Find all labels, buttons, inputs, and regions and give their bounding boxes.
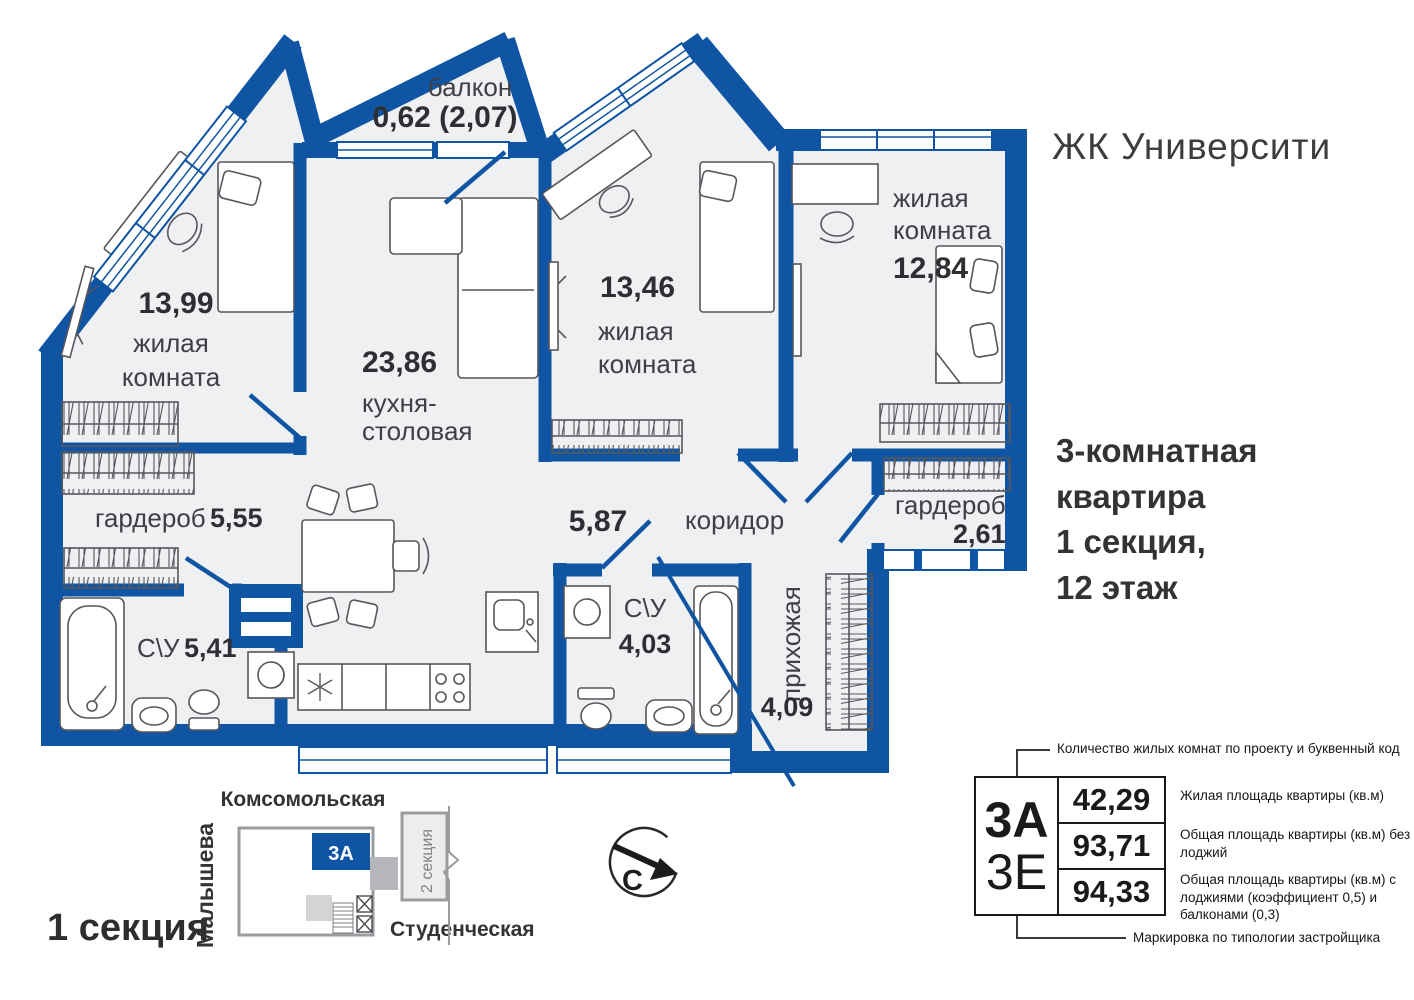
balcony-label: балкон <box>428 72 512 102</box>
neighbor-section-label: 2 секция <box>419 829 436 893</box>
legend-connector <box>1016 916 1018 939</box>
dining-table <box>302 520 394 592</box>
legend-row-label: Жилая площадь квартиры (кв.м) <box>1180 787 1412 805</box>
wardrobe2-label: гардероб <box>895 490 1006 520</box>
balcony-window-door <box>337 142 509 158</box>
legend-row-label: Общая площадь квартиры (кв.м) с лоджиями… <box>1180 871 1412 924</box>
apartment-summary-line: квартира <box>1056 474 1258 520</box>
bathtub <box>60 598 124 730</box>
living1-label: жилая <box>133 328 209 358</box>
vent-shaft <box>229 584 303 648</box>
balcony-area: 0,62 (2,07) <box>372 101 517 134</box>
kitchen-area: 23,86 <box>362 346 437 379</box>
area-total-value: 93,71 <box>1059 822 1164 868</box>
legend-connector <box>1016 749 1050 751</box>
legend-connector <box>1016 937 1126 939</box>
shelf-rack <box>884 458 1010 491</box>
apartment-summary-line: 12 этаж <box>1056 565 1258 611</box>
floor-plan-svg: балкон 0,62 (2,07) 13,99 жилая комната 2… <box>0 0 1040 792</box>
street-bottom: Студенческая <box>390 918 535 941</box>
site-plan-svg: 1 секция Малышева Комсомольская Студенче… <box>35 780 705 985</box>
legend-values: 42,29 93,71 94,33 <box>1059 778 1164 914</box>
living3-label: жилая <box>893 183 969 213</box>
shelf-rack <box>552 420 682 453</box>
apartment-summary-line: 1 секция, <box>1056 519 1258 565</box>
area-living-value: 42,29 <box>1059 778 1164 822</box>
window-sill <box>299 747 731 773</box>
tv-icon <box>793 264 801 356</box>
washbasin <box>646 700 692 732</box>
corridor-area: 5,87 <box>569 505 627 538</box>
living1-area: 13,99 <box>138 287 213 320</box>
living1-label: комната <box>122 362 221 392</box>
desk <box>792 164 878 204</box>
hallway-label: прихожая <box>776 586 806 702</box>
compass-north-label: С <box>622 865 643 897</box>
page: балкон 0,62 (2,07) 13,99 жилая комната 2… <box>0 0 1414 1000</box>
stool <box>346 483 378 512</box>
building-outline: 3А <box>239 828 398 935</box>
kitchen-sink <box>486 592 538 652</box>
stool <box>346 599 378 628</box>
bathroom1-label: С\У <box>137 633 180 663</box>
area-total-loggia-value: 94,33 <box>1059 868 1164 914</box>
legend-box: 3А 3Е 42,29 93,71 94,33 <box>974 776 1166 916</box>
unit-code-primary: 3А <box>985 794 1049 846</box>
page-title: ЖК Университи <box>1052 126 1331 168</box>
wardrobe2-area: 2,61 <box>953 519 1006 549</box>
unit-code-secondary: 3Е <box>986 846 1047 898</box>
fan-icon <box>564 586 610 638</box>
bathroom1-area: 5,41 <box>184 633 237 663</box>
living3-label: комната <box>893 215 992 245</box>
living2-label: жилая <box>598 316 674 346</box>
legend-connector <box>1016 749 1018 776</box>
legend-row-label: Общая площадь квартиры (кв.м) без лоджий <box>1180 826 1412 861</box>
kitchen-label: кухня- <box>362 388 437 418</box>
hallway-area: 4,09 <box>761 692 814 722</box>
fan-icon <box>248 652 294 698</box>
shelf-rack <box>880 404 1010 442</box>
kitchen-counter <box>298 664 470 710</box>
wardrobe1-label: гардероб <box>95 503 206 533</box>
shelf-rack <box>64 548 178 588</box>
stairs-icon <box>333 903 353 933</box>
bathroom2-label: С\У <box>624 593 667 623</box>
shelf-rack <box>62 452 194 494</box>
corridor-label: коридор <box>685 505 784 535</box>
shelf-rack <box>62 402 178 446</box>
shelf-rack <box>826 574 872 730</box>
living3-area: 12,84 <box>893 252 968 285</box>
compass: С <box>601 819 687 905</box>
street-left: Малышева <box>192 823 218 948</box>
living2-area: 13,46 <box>600 271 675 304</box>
legend-top-note: Количество жилых комнат по проекту и бук… <box>1057 741 1400 756</box>
apartment-summary-line: 3-комнатная <box>1056 428 1258 474</box>
bathroom2-area: 4,03 <box>619 629 672 659</box>
legend-codes: 3А 3Е <box>976 778 1059 914</box>
legend-bottom-note: Маркировка по типологии застройщика <box>1133 930 1380 945</box>
living2-label: комната <box>598 349 697 379</box>
window <box>820 130 992 150</box>
unit-code: 3А <box>328 843 354 865</box>
vent-slots <box>884 551 1004 569</box>
bathtub <box>694 586 738 734</box>
toilet <box>189 690 219 730</box>
street-top: Комсомольская <box>221 788 386 811</box>
apartment-summary: 3-комнатная квартира 1 секция, 12 этаж <box>1056 428 1258 610</box>
washbasin <box>132 698 176 732</box>
section-label: 1 секция <box>47 907 209 949</box>
kitchen-label: столовая <box>362 416 473 446</box>
wardrobe1-area: 5,55 <box>210 503 263 533</box>
toilet <box>578 688 614 729</box>
